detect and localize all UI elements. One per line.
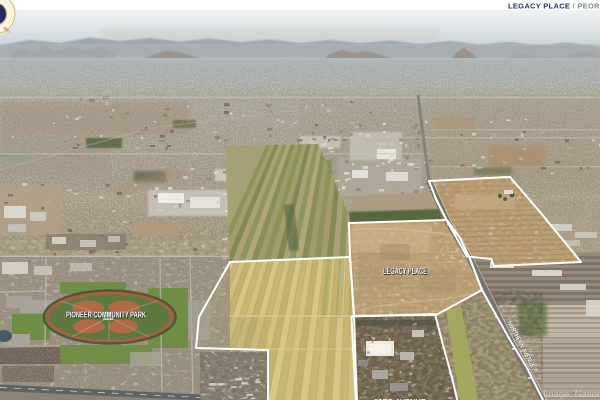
svg-text:Image: Nationa: Image: Nationa [543,389,600,400]
svg-text:LEGACY PLACE / PEORIA: LEGACY PLACE / PEORIA [508,1,600,10]
svg-text:LEGACY PLACE: LEGACY PLACE [383,266,427,277]
svg-text:PIONEER COMMUNITY PARK: PIONEER COMMUNITY PARK [66,310,147,320]
